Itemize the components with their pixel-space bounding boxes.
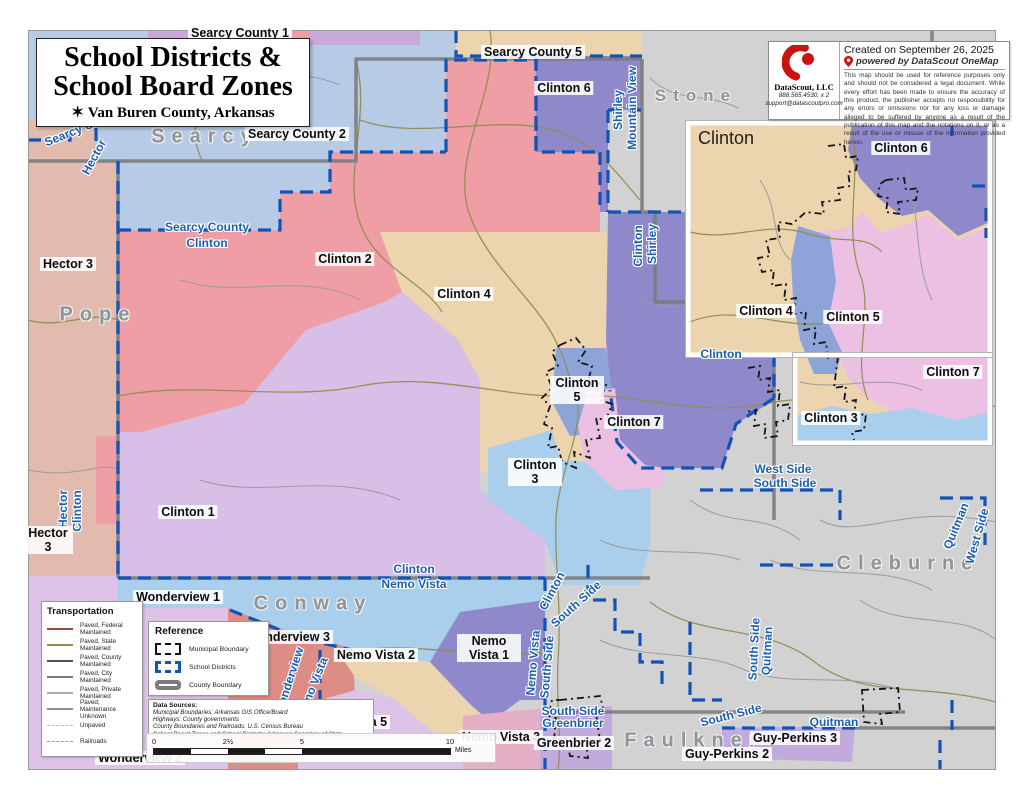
map-subtitle: ✶Van Buren County, Arkansas — [41, 103, 305, 122]
data-sources-box: Data Sources: Municipal Boundaries: Arka… — [148, 699, 374, 736]
datascout-logo-panel: DataScout, LLC 888.565.4530, x 2 support… — [769, 42, 840, 119]
legend-row: Municipal Boundary — [155, 640, 262, 658]
line-swatch-unpaved — [47, 725, 73, 726]
school-district-swatch — [155, 661, 181, 673]
line-swatch-city — [47, 676, 73, 678]
map-page: { "title_block": { "line1": "School Dist… — [0, 0, 1024, 788]
scale-tick: 10 — [446, 737, 454, 746]
datascout-company: DataScout, LLC — [774, 82, 834, 92]
data-source-line: Highways: County governments — [153, 716, 369, 723]
legend-row-label: Railroads — [80, 738, 107, 745]
region-greenbrier-purple — [540, 706, 612, 770]
legend-row-label: Paved, Maintenance Unknown — [80, 699, 137, 720]
legend-reference: Reference Municipal Boundary School Dist… — [148, 621, 269, 696]
map-subtitle-text: Van Buren County, Arkansas — [88, 105, 275, 121]
legend-row: Paved, County Maintained — [47, 653, 137, 669]
line-swatch-unknown — [47, 708, 73, 710]
legend-row-label: Unpaved — [80, 722, 105, 729]
line-swatch-county — [47, 660, 73, 662]
datascout-pin-icon — [844, 56, 853, 67]
legend-row-label: Paved, State Maintained — [80, 638, 137, 652]
legend-row: Railroads — [47, 733, 137, 749]
legend-reference-title: Reference — [155, 626, 262, 637]
powered-by: powered by DataScout OneMap — [844, 56, 1005, 70]
scale-unit: Miles — [455, 747, 471, 754]
line-swatch-state — [47, 644, 73, 646]
line-swatch-railroads — [47, 741, 73, 742]
disclaimer-text: This map should be used for reference pu… — [844, 72, 1005, 147]
line-swatch-private — [47, 692, 73, 694]
legend-row: Paved, City Maintained — [47, 669, 137, 685]
data-source-line: Municipal Boundaries: Arkansas GIS Offic… — [153, 709, 369, 716]
legend-row-label: School Districts — [189, 664, 236, 671]
scale-tick: 5 — [300, 737, 304, 746]
legend-row: County Boundary — [155, 676, 262, 694]
legend-transportation: Transportation Paved, Federal Maintained… — [41, 601, 143, 757]
data-source-line: County Boundaries and Railroads: U.S. Ce… — [153, 723, 369, 730]
map-title-box: School Districts & School Board Zones ✶V… — [36, 38, 310, 127]
map-title-line2: School Board Zones — [41, 73, 305, 102]
map-title-line1: School Districts & — [41, 44, 305, 73]
municipal-boundary-swatch — [155, 643, 181, 655]
north-star-icon: ✶ — [71, 105, 84, 121]
legend-transportation-title: Transportation — [47, 606, 137, 617]
credit-box: DataScout, LLC 888.565.4530, x 2 support… — [768, 41, 1010, 120]
data-sources-title: Data Sources: — [153, 702, 369, 709]
scale-tick: 0 — [152, 737, 156, 746]
legend-row: Paved, State Maintained — [47, 637, 137, 653]
credit-text-panel: Created on September 26, 2025 powered by… — [840, 42, 1009, 119]
powered-by-text: powered by DataScout OneMap — [856, 56, 999, 67]
created-date: Created on September 26, 2025 — [844, 44, 1005, 56]
scale-bar: 0 2½ 5 10 Miles — [146, 733, 496, 763]
legend-row-label: Paved, County Maintained — [80, 654, 137, 668]
scale-tick: 2½ — [223, 737, 233, 746]
legend-row: School Districts — [155, 658, 262, 676]
county-boundary-swatch — [155, 680, 181, 690]
legend-row-label: County Boundary — [189, 682, 242, 689]
legend-row-label: Paved, Federal Maintained — [80, 622, 137, 636]
datascout-phone: 888.565.4530, x 2 — [779, 92, 829, 100]
legend-row: Paved, Federal Maintained — [47, 621, 137, 637]
scale-bar-strip — [153, 748, 451, 755]
legend-row: Paved, Maintenance Unknown — [47, 701, 137, 717]
datascout-email: support@datascoutpro.com — [765, 100, 842, 108]
datascout-logo — [782, 45, 826, 81]
region-clinton2-north-lobe — [446, 60, 536, 152]
legend-row-label: Paved, City Maintained — [80, 670, 137, 684]
region-guyperkins-purple — [722, 726, 855, 762]
legend-row-label: Municipal Boundary — [189, 646, 249, 653]
line-swatch-federal — [47, 628, 73, 630]
